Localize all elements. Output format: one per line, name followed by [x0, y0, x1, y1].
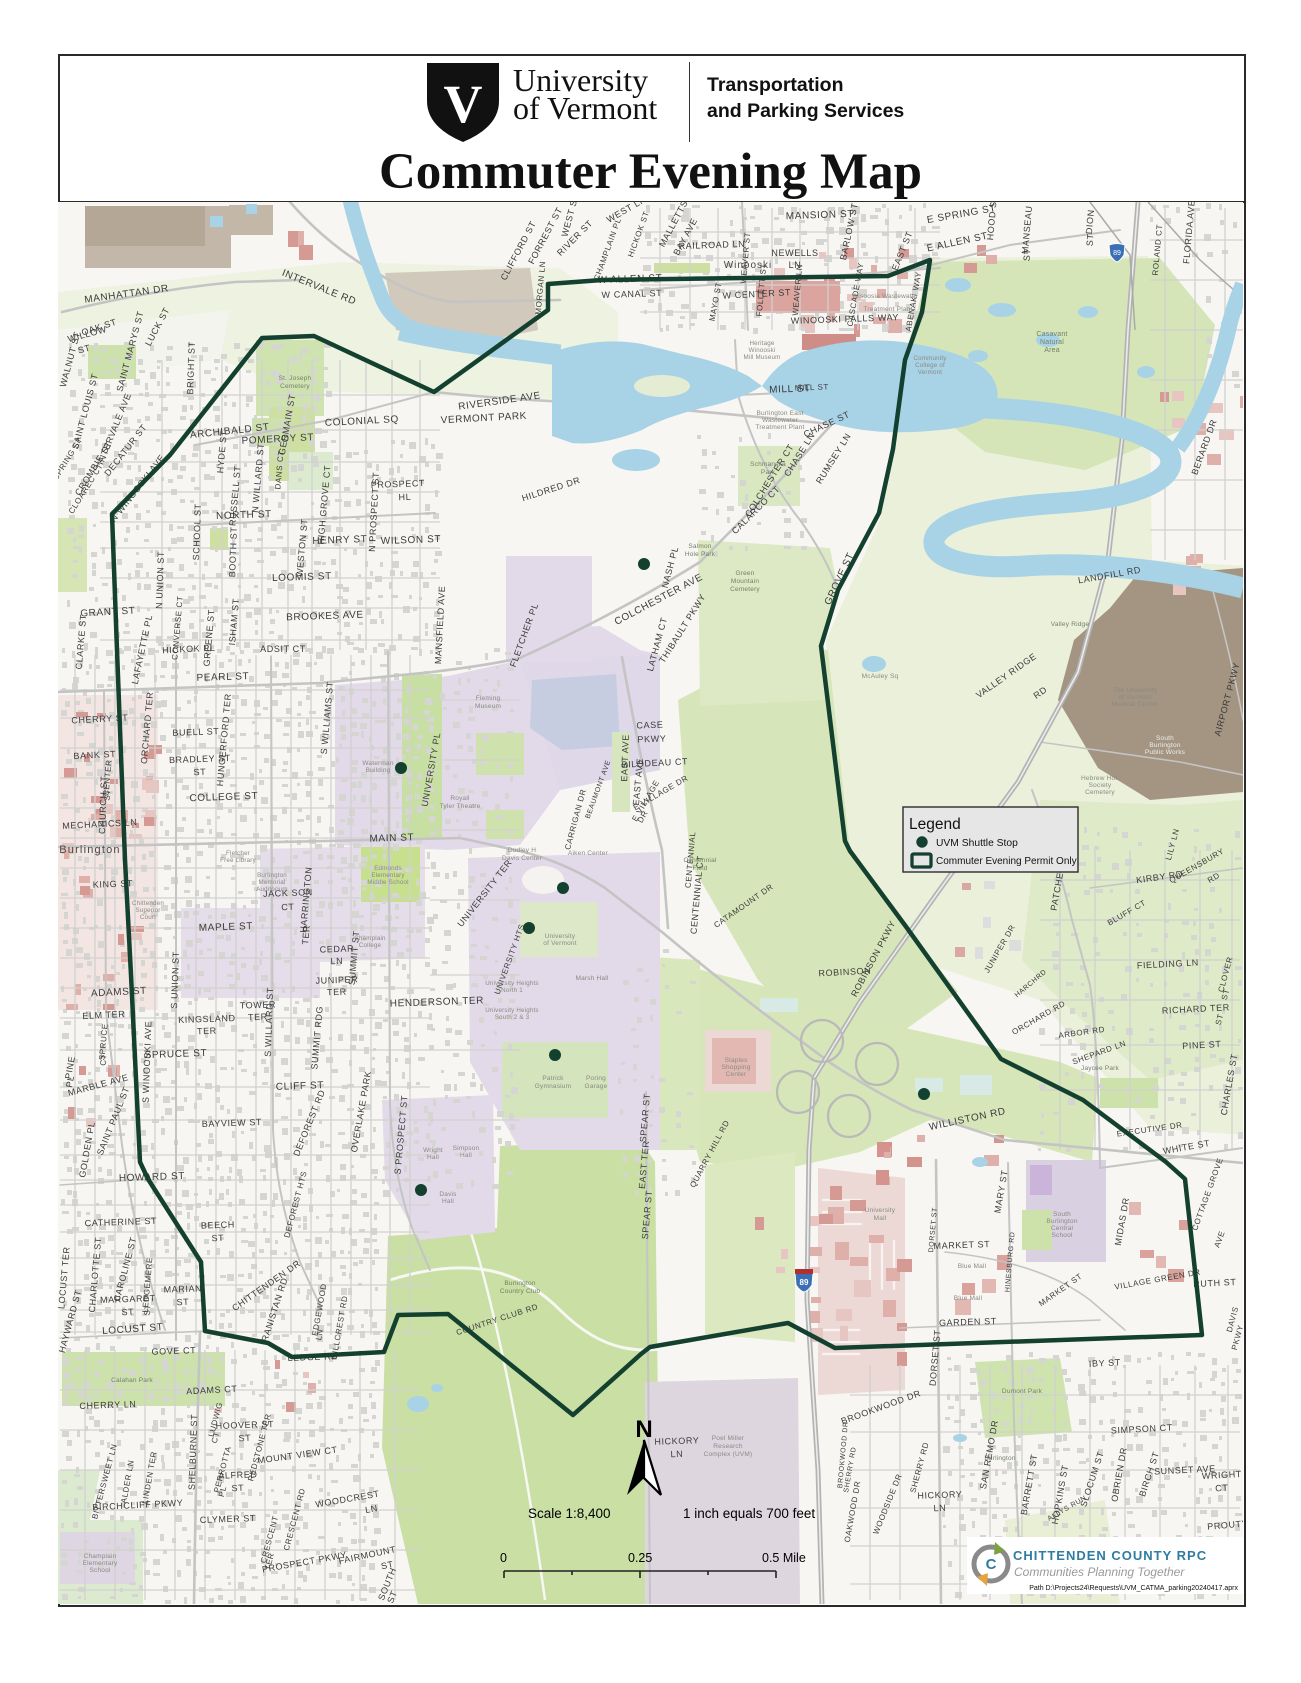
svg-text:Gymnasium: Gymnasium	[535, 1083, 571, 1090]
svg-text:Cemetery: Cemetery	[730, 586, 760, 593]
svg-text:of Vermont: of Vermont	[543, 940, 576, 947]
svg-text:UVM Shuttle Stop: UVM Shuttle Stop	[936, 838, 1018, 849]
svg-text:Garage: Garage	[585, 1083, 608, 1090]
svg-text:ST: ST	[211, 1233, 224, 1243]
svg-text:Mall: Mall	[874, 1215, 887, 1222]
svg-text:ST: ST	[1021, 248, 1032, 262]
svg-text:University: University	[545, 933, 576, 940]
svg-text:Poring: Poring	[586, 1075, 606, 1082]
svg-text:Hole Park: Hole Park	[685, 551, 716, 558]
svg-text:MILL ST: MILL ST	[795, 382, 829, 392]
svg-text:Chittenden: Chittenden	[132, 900, 164, 907]
svg-text:Casavant: Casavant	[1036, 331, 1067, 338]
svg-text:ST: ST	[193, 767, 206, 777]
svg-text:North 1: North 1	[501, 987, 523, 994]
svg-text:WRIGHT: WRIGHT	[1202, 1469, 1243, 1481]
svg-text:NEWELLS: NEWELLS	[771, 248, 818, 258]
svg-text:ST: ST	[121, 1307, 134, 1317]
svg-text:89: 89	[800, 1278, 809, 1287]
svg-text:South: South	[1053, 1211, 1071, 1218]
svg-text:Elementary: Elementary	[83, 1560, 118, 1567]
svg-text:LN: LN	[933, 1503, 946, 1513]
svg-text:CHERRY LN: CHERRY LN	[79, 1399, 136, 1411]
svg-text:BRIGHT ST: BRIGHT ST	[185, 341, 197, 395]
svg-text:Scale 1:8,400: Scale 1:8,400	[528, 1506, 611, 1521]
svg-text:Cemetery: Cemetery	[1085, 789, 1115, 796]
svg-text:N UNION ST: N UNION ST	[154, 551, 166, 609]
svg-text:Center: Center	[726, 1071, 747, 1078]
svg-text:TER: TER	[248, 1012, 268, 1023]
svg-text:St. Joseph: St. Joseph	[279, 375, 312, 382]
svg-text:BEECH: BEECH	[201, 1219, 235, 1230]
svg-text:Legend: Legend	[909, 816, 961, 833]
svg-text:Davis Center: Davis Center	[502, 855, 543, 862]
svg-text:University Heights: University Heights	[485, 980, 538, 987]
svg-text:McAuley Sq: McAuley Sq	[862, 673, 899, 680]
svg-text:Middle School: Middle School	[367, 879, 408, 886]
svg-text:MARIAN: MARIAN	[163, 1283, 202, 1294]
svg-text:Burlington East: Burlington East	[756, 410, 803, 417]
svg-text:Fletcher: Fletcher	[226, 850, 250, 857]
svg-text:Treatment Plant: Treatment Plant	[863, 306, 912, 313]
svg-text:Memorial: Memorial	[258, 879, 285, 886]
svg-text:BAYVIEW ST: BAYVIEW ST	[202, 1117, 263, 1129]
svg-text:Superior: Superior	[136, 907, 161, 914]
svg-text:Area: Area	[1044, 347, 1060, 354]
svg-text:Blue Mall: Blue Mall	[954, 1295, 983, 1302]
svg-text:South: South	[1156, 735, 1174, 742]
svg-text:HICKORY: HICKORY	[917, 1489, 962, 1501]
svg-text:1 inch equals 700 feet: 1 inch equals 700 feet	[683, 1506, 815, 1521]
svg-text:Hebrew Hol.: Hebrew Hol.	[1081, 775, 1119, 782]
svg-text:University Heights: University Heights	[485, 1007, 538, 1014]
svg-text:TER: TER	[327, 987, 347, 998]
svg-text:ST: ST	[231, 1483, 244, 1493]
svg-text:Salmon: Salmon	[688, 543, 711, 550]
svg-text:ST: ST	[176, 1297, 189, 1307]
svg-text:HL: HL	[398, 492, 411, 502]
svg-text:The University: The University	[1113, 687, 1158, 694]
svg-text:School: School	[1051, 1232, 1072, 1239]
svg-text:Schmanska: Schmanska	[750, 461, 786, 468]
svg-text:Burlington: Burlington	[257, 872, 287, 879]
svg-text:PEARL ST: PEARL ST	[196, 671, 249, 684]
svg-text:Wisoosia Wastewater: Wisoosia Wastewater	[852, 293, 919, 300]
svg-text:TOWER: TOWER	[240, 999, 277, 1010]
svg-text:Complex (UVM): Complex (UVM)	[704, 1451, 753, 1458]
svg-text:Natural: Natural	[1040, 339, 1064, 346]
svg-text:Burlington: Burlington	[1149, 742, 1180, 749]
svg-text:IBY ST: IBY ST	[1089, 1357, 1121, 1369]
svg-text:0: 0	[500, 1551, 507, 1565]
svg-text:Burlington: Burlington	[504, 1280, 535, 1287]
svg-text:Champlain: Champlain	[354, 935, 386, 942]
svg-text:TER: TER	[197, 1026, 217, 1037]
svg-text:Central: Central	[1051, 1225, 1074, 1232]
svg-text:Centennial: Centennial	[683, 857, 716, 864]
svg-text:of Vermont: of Vermont	[1118, 694, 1151, 701]
svg-text:Auditorium: Auditorium	[256, 886, 288, 893]
svg-text:Shopping: Shopping	[721, 1064, 750, 1071]
svg-text:Burlington: Burlington	[59, 844, 121, 856]
svg-text:Park: Park	[761, 469, 776, 476]
svg-text:EAST AVE: EAST AVE	[619, 734, 631, 782]
svg-text:Green: Green	[735, 570, 754, 577]
svg-text:CASE: CASE	[636, 720, 663, 731]
svg-text:Building: Building	[366, 767, 391, 774]
svg-text:MARKET ST: MARKET ST	[933, 1239, 990, 1251]
svg-text:CHITTENDEN COUNTY RPC: CHITTENDEN COUNTY RPC	[1013, 1548, 1207, 1563]
svg-text:University: University	[865, 1207, 896, 1214]
svg-text:Patrick: Patrick	[542, 1075, 564, 1082]
svg-text:Vermont: Vermont	[918, 369, 943, 376]
svg-text:ST: ST	[143, 1304, 153, 1316]
svg-text:Burlington: Burlington	[1046, 1218, 1077, 1225]
svg-text:GARDEN ST: GARDEN ST	[939, 1316, 997, 1328]
svg-text:Heritage: Heritage	[750, 340, 775, 347]
svg-text:College of: College of	[915, 362, 945, 369]
svg-text:LN: LN	[330, 956, 343, 966]
svg-text:Mill Museum: Mill Museum	[744, 354, 781, 361]
svg-text:WILSON ST: WILSON ST	[381, 534, 442, 547]
svg-text:BUELL ST: BUELL ST	[172, 726, 219, 738]
svg-text:Dudley H: Dudley H	[508, 847, 536, 854]
svg-text:Elementary: Elementary	[371, 872, 405, 879]
svg-text:Calahan Park: Calahan Park	[111, 1377, 153, 1384]
svg-text:S UNION ST: S UNION ST	[169, 951, 181, 1009]
svg-text:Hall: Hall	[427, 1154, 439, 1161]
svg-text:0.5 Mile: 0.5 Mile	[762, 1551, 806, 1565]
svg-text:LN: LN	[670, 1449, 683, 1459]
svg-text:0.25: 0.25	[628, 1551, 652, 1565]
svg-text:Valley Ridge: Valley Ridge	[1051, 621, 1090, 628]
svg-text:ADSIT CT: ADSIT CT	[260, 644, 306, 654]
svg-text:Champlain: Champlain	[84, 1553, 117, 1560]
svg-text:Winooski: Winooski	[749, 347, 776, 354]
svg-text:Fleming: Fleming	[476, 695, 501, 702]
svg-text:Public Works: Public Works	[1145, 749, 1186, 756]
svg-text:CT: CT	[1215, 1483, 1229, 1494]
svg-text:ST: ST	[1084, 233, 1095, 247]
svg-text:Wright: Wright	[423, 1147, 443, 1154]
svg-text:Treatment Plant: Treatment Plant	[755, 424, 804, 431]
svg-text:89: 89	[1113, 250, 1121, 257]
svg-text:Winooski: Winooski	[724, 260, 773, 271]
svg-text:Poel Miller: Poel Miller	[712, 1435, 745, 1442]
svg-text:Staples: Staples	[724, 1057, 748, 1064]
svg-text:NORTH ST: NORTH ST	[216, 509, 272, 522]
svg-text:Marsh Hall: Marsh Hall	[575, 975, 608, 982]
svg-text:Field: Field	[692, 865, 707, 872]
svg-text:Hall: Hall	[460, 1152, 472, 1159]
svg-text:South 2 & 3: South 2 & 3	[495, 1014, 530, 1021]
svg-text:CLYMER ST: CLYMER ST	[200, 1513, 257, 1525]
svg-text:V: V	[444, 74, 483, 134]
svg-text:Burlington: Burlington	[984, 1455, 1015, 1462]
svg-text:PKWY: PKWY	[637, 734, 666, 745]
svg-text:ST: ST	[238, 1433, 251, 1443]
svg-text:Davis: Davis	[439, 1191, 457, 1198]
svg-text:PINE ST: PINE ST	[1182, 1039, 1222, 1051]
svg-text:MAIN ST: MAIN ST	[369, 832, 414, 845]
svg-text:Research: Research	[713, 1443, 743, 1450]
svg-text:MAPLE ST: MAPLE ST	[199, 921, 254, 934]
svg-text:Aiken Center: Aiken Center	[568, 850, 609, 857]
svg-text:Path D:\Projects24\Requests\UV: Path D:\Projects24\Requests\UVM_CATMA_pa…	[1029, 1585, 1238, 1592]
svg-text:JUNIPER: JUNIPER	[315, 974, 358, 985]
svg-text:CT: CT	[99, 1053, 109, 1066]
svg-text:Society: Society	[1089, 782, 1112, 789]
svg-text:Dumont Park: Dumont Park	[1002, 1388, 1043, 1395]
svg-text:N: N	[635, 1416, 652, 1443]
svg-text:College: College	[359, 942, 382, 949]
svg-text:Royall: Royall	[450, 795, 470, 802]
svg-text:Tyler Theatre: Tyler Theatre	[440, 803, 481, 810]
svg-text:W CANAL ST: W CANAL ST	[601, 288, 662, 300]
svg-text:HICKORY: HICKORY	[654, 1435, 699, 1447]
svg-text:Medical Center: Medical Center	[1112, 701, 1159, 708]
svg-text:Communities Planning Together: Communities Planning Together	[1014, 1565, 1185, 1579]
svg-text:Commuter Evening Permit Only: Commuter Evening Permit Only	[936, 856, 1077, 867]
svg-text:Hall: Hall	[442, 1198, 454, 1205]
svg-text:Jaycee Park: Jaycee Park	[1081, 1065, 1120, 1072]
svg-text:BOOTH ST: BOOTH ST	[227, 526, 239, 577]
svg-text:School: School	[89, 1567, 110, 1574]
svg-text:Museum: Museum	[475, 703, 501, 710]
svg-text:Mountain: Mountain	[731, 578, 760, 585]
svg-text:SPRUCE ST: SPRUCE ST	[144, 1048, 207, 1061]
svg-text:GOVE CT: GOVE CT	[151, 1345, 196, 1357]
svg-text:LOOMIS ST: LOOMIS ST	[272, 571, 332, 584]
svg-text:PROSPECT: PROSPECT	[371, 478, 426, 490]
svg-text:Country Club: Country Club	[500, 1288, 541, 1295]
svg-text:C: C	[986, 1556, 997, 1573]
svg-text:Wastewater: Wastewater	[762, 417, 799, 424]
svg-text:Court: Court	[140, 914, 156, 921]
svg-text:TER: TER	[300, 924, 312, 945]
svg-text:Blue Mall: Blue Mall	[958, 1263, 987, 1270]
svg-text:KINGSLAND: KINGSLAND	[178, 1013, 236, 1025]
svg-text:Community: Community	[913, 355, 947, 362]
svg-text:Edmonds: Edmonds	[374, 865, 402, 872]
svg-text:SCHOOL ST: SCHOOL ST	[191, 503, 203, 560]
svg-text:Waterman: Waterman	[362, 760, 394, 767]
svg-text:Free Library: Free Library	[220, 857, 256, 864]
svg-text:CT: CT	[281, 902, 295, 912]
svg-text:Cemetery: Cemetery	[280, 383, 310, 390]
svg-text:Simpson: Simpson	[453, 1145, 480, 1152]
